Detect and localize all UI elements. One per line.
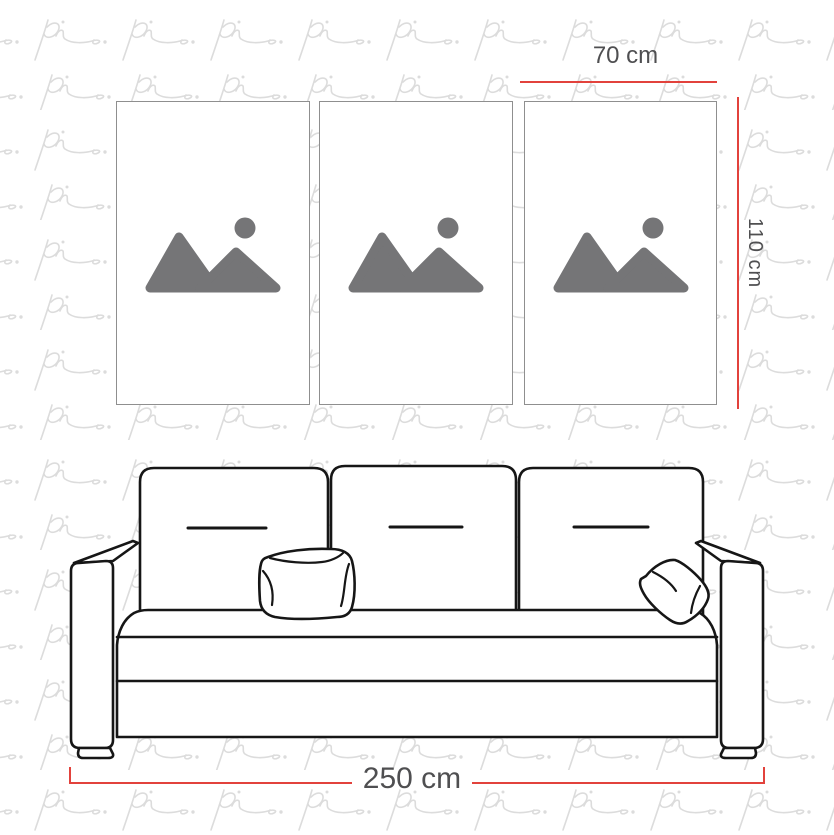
sofa-left-arm <box>71 561 113 748</box>
panel-width-dimension-label: 70 cm <box>520 42 717 70</box>
panel-height-dimension-line <box>737 97 739 409</box>
panel-width-dimension-line <box>520 81 717 83</box>
sofa-width-left-tick <box>69 767 71 783</box>
sofa-width-dimension-label: 250 cm <box>352 762 472 796</box>
sofa-illustration <box>0 0 834 835</box>
sofa-base <box>117 610 717 737</box>
sofa-right-foot <box>721 748 756 758</box>
size-guide-infographic: 70 cm 110 cm 250 cm <box>0 0 834 835</box>
sofa-width-dimension-line-left <box>69 782 352 784</box>
panel-height-dimension-label: 110 cm <box>743 218 766 288</box>
back-cushion-center <box>331 466 516 616</box>
sofa-right-arm <box>721 561 763 748</box>
sofa-width-right-tick <box>763 767 765 783</box>
sofa-left-foot <box>78 748 113 758</box>
sofa-width-dimension-line-right <box>472 782 765 784</box>
